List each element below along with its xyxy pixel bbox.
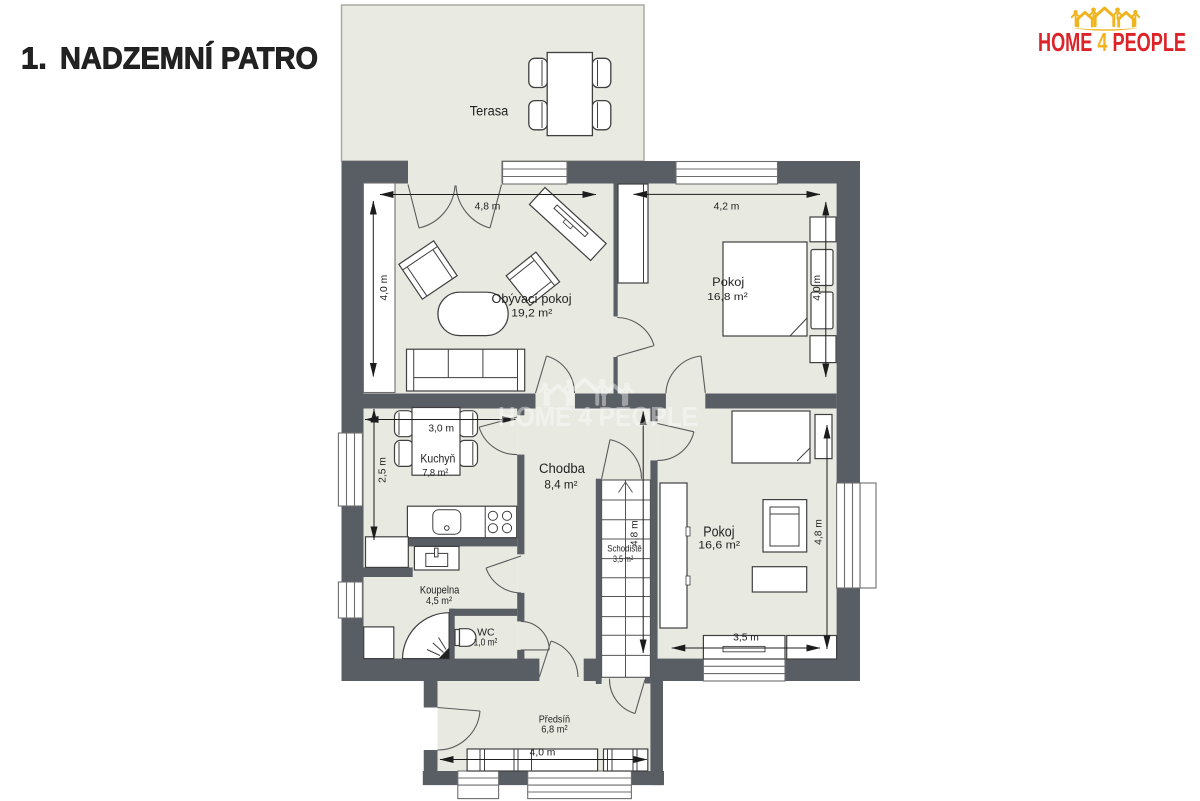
- svg-text:WC: WC: [477, 626, 495, 638]
- svg-text:4,0 m: 4,0 m: [812, 275, 823, 301]
- svg-text:Pokoj: Pokoj: [703, 523, 734, 540]
- svg-text:4,5 m²: 4,5 m²: [426, 596, 453, 607]
- svg-text:1,0 m²: 1,0 m²: [474, 638, 498, 649]
- svg-text:Kuchyň: Kuchyň: [420, 451, 455, 465]
- svg-text:4,8 m: 4,8 m: [814, 519, 825, 545]
- svg-text:3,5 m: 3,5 m: [733, 633, 759, 644]
- svg-text:16,8 m²: 16,8 m²: [707, 291, 748, 303]
- svg-text:16,6 m²: 16,6 m²: [698, 540, 740, 552]
- svg-text:6,8 m²: 6,8 m²: [541, 724, 568, 735]
- svg-text:8,4 m²: 8,4 m²: [544, 480, 577, 492]
- svg-text:Obývací pokoj: Obývací pokoj: [492, 291, 572, 306]
- svg-text:3,0 m: 3,0 m: [428, 424, 454, 435]
- svg-text:NADZEMNÍ PATRO: NADZEMNÍ PATRO: [60, 41, 318, 76]
- svg-text:4,8 m: 4,8 m: [475, 201, 501, 212]
- svg-text:4,8 m: 4,8 m: [630, 520, 641, 546]
- svg-text:2,5 m: 2,5 m: [378, 457, 389, 483]
- svg-text:4,0 m: 4,0 m: [379, 275, 390, 301]
- svg-text:HOME 4 PEOPLE: HOME 4 PEOPLE: [1038, 29, 1186, 57]
- svg-text:Pokoj: Pokoj: [712, 275, 744, 289]
- svg-text:4,0 m: 4,0 m: [530, 748, 556, 759]
- svg-text:Koupelna: Koupelna: [420, 585, 460, 597]
- svg-text:3,5 m²: 3,5 m²: [613, 554, 634, 565]
- svg-text:1.: 1.: [21, 41, 47, 76]
- svg-text:Terasa: Terasa: [470, 104, 509, 119]
- svg-text:7,8 m²: 7,8 m²: [422, 468, 449, 479]
- svg-text:HOME 4 PEOPLE: HOME 4 PEOPLE: [498, 401, 698, 432]
- svg-text:19,2 m²: 19,2 m²: [511, 308, 552, 320]
- svg-text:Chodba: Chodba: [539, 461, 586, 476]
- svg-text:4,2 m: 4,2 m: [714, 202, 740, 213]
